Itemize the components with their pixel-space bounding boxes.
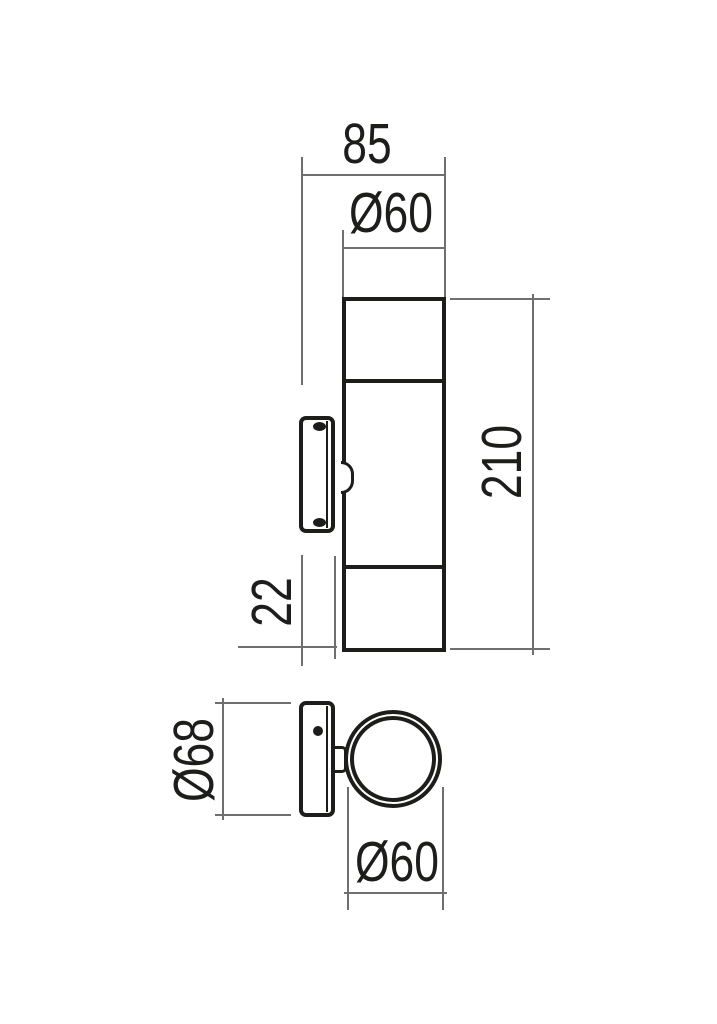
extension-line-wall-plane bbox=[301, 157, 303, 385]
side-view-body-outline bbox=[342, 297, 446, 652]
top-view-bracket-screw bbox=[313, 726, 323, 736]
extension-line-bracket-front bbox=[334, 556, 336, 659]
extension-line-bracket-plate-top bbox=[215, 702, 291, 704]
dimension-label-overall-height: 210 bbox=[472, 400, 532, 525]
side-view-bracket-edge-line bbox=[326, 421, 328, 528]
dimension-label-bracket-plate-height: Ø68 bbox=[164, 698, 224, 823]
bracket-screw-bottom bbox=[313, 518, 326, 527]
drawing-canvas: 85 Ø60 210 22 Ø68 Ø60 bbox=[0, 0, 717, 1024]
top-view-wall-bracket bbox=[299, 701, 335, 817]
side-view-wall-bracket bbox=[299, 416, 335, 533]
dimension-label-body-diameter-side: Ø60 bbox=[329, 183, 454, 243]
extension-line-body-top bbox=[450, 298, 550, 300]
dimension-label-body-diameter-front: Ø60 bbox=[335, 832, 460, 892]
top-view-body-inner-circle bbox=[350, 716, 436, 802]
bracket-screw-top bbox=[313, 422, 326, 431]
dimension-line-body-diameter-side bbox=[342, 247, 446, 249]
side-view-top-section-divider bbox=[346, 379, 442, 383]
top-view-bracket-edge-line bbox=[326, 706, 328, 812]
dimension-label-bracket-depth: 22 bbox=[242, 540, 302, 665]
extension-line-body-bottom bbox=[450, 648, 550, 650]
extension-line-bracket-plate-bottom bbox=[215, 814, 291, 816]
dimension-label-overall-depth: 85 bbox=[305, 114, 430, 174]
side-view-bottom-section-divider bbox=[346, 565, 442, 569]
